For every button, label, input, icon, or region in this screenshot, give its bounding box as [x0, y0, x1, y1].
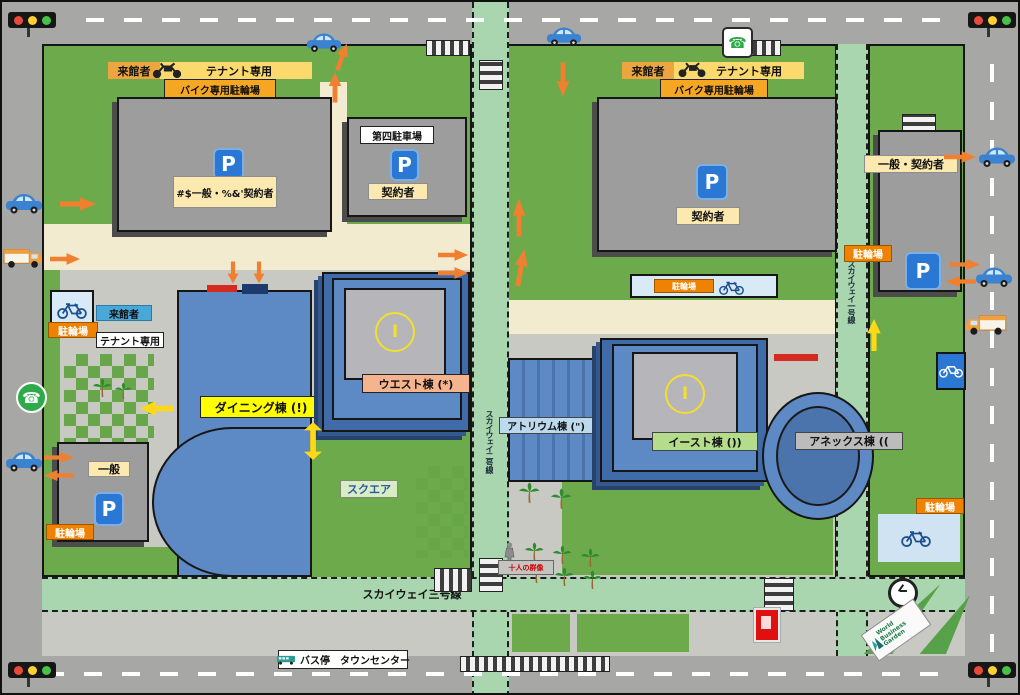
traffic-light-icon	[8, 12, 56, 28]
square-label: スクエア	[340, 480, 398, 498]
car-icon	[305, 30, 343, 54]
public-phone-icon: ☎	[722, 27, 753, 58]
truck-icon	[964, 310, 1008, 337]
east-tower-roof-glyph: I	[665, 374, 705, 414]
annex-building-label: アネックス棟 ((	[795, 432, 903, 450]
parking-sign: P	[390, 149, 419, 181]
car-icon	[545, 24, 583, 48]
palm-tree-icon	[518, 482, 540, 504]
car-icon	[4, 448, 44, 474]
west-gate-visitor-label: 来館者	[96, 305, 152, 321]
palm-tree-icon	[582, 570, 602, 590]
palm-tree-icon	[554, 567, 574, 587]
east-tower-label: イースト棟 ())	[652, 432, 758, 451]
palm-tree-icon	[114, 382, 132, 400]
traffic-light-icon	[968, 12, 1016, 28]
palm-tree-icon	[580, 548, 600, 568]
fourth-parking-label: 契約者	[368, 183, 428, 200]
car-icon	[977, 144, 1017, 169]
bicycle-icon	[900, 528, 932, 547]
skyway-line2-label: スカイウェイ二号線	[485, 410, 493, 520]
palm-tree-icon	[524, 542, 544, 562]
southeast-bike-label: 駐輪場	[916, 498, 964, 514]
west-gate-tenant-label: テナント専用	[96, 332, 164, 348]
motorcycle-icon	[150, 59, 184, 79]
west-gate-bike-label: 駐輪場	[48, 322, 98, 338]
west-tower-label: ウエスト棟 (*)	[362, 374, 470, 393]
crosswalk-top-west	[426, 40, 470, 56]
monument-label: 十人の群像	[498, 560, 554, 575]
top-road-centerline	[86, 18, 956, 22]
northeast-parking-label: 契約者	[676, 207, 740, 225]
planter-grid-square	[416, 466, 468, 558]
traffic-light-icon	[8, 662, 56, 678]
east-band-visitor: 来館者	[622, 62, 674, 79]
east-parking-label: 一般・契約者	[864, 155, 958, 173]
crosswalk-bottom-road	[460, 656, 610, 672]
stairs-skyway3-west	[434, 568, 472, 592]
east-bike-parking-label: バイク専用駐輪場	[660, 79, 768, 99]
southwest-bike-label: 駐輪場	[46, 524, 94, 540]
south-lawn-1	[512, 614, 570, 652]
west-band-tenant: テナント専用	[194, 62, 284, 79]
motorcycle-icon	[676, 59, 708, 78]
car-icon	[4, 190, 44, 216]
red-signboard-icon	[754, 608, 780, 642]
south-lawn-2	[577, 614, 689, 652]
skyway-line3-road	[42, 577, 965, 612]
parking-sign: P	[696, 164, 728, 200]
bus-icon	[276, 654, 296, 665]
east-roof-red-mark	[774, 354, 818, 361]
east-parking-bike-label: 駐輪場	[844, 245, 892, 262]
stairs-skyway3-east	[764, 578, 794, 611]
bicycle-icon	[938, 362, 964, 378]
bicycle-icon	[56, 300, 88, 319]
northwest-parking-label: #$一般・%&'契約者	[173, 176, 277, 208]
center-bike-label: 駐輪場	[654, 279, 714, 293]
bus-stop-text: バス停 タウンセンター	[300, 652, 410, 667]
crosswalk-skyway2-north	[479, 60, 503, 90]
fourth-parking-name: 第四駐車場	[360, 126, 434, 144]
skyway-line1-label: スカイウェイ一号線	[847, 260, 855, 370]
dining-building-label: ダイニング棟 (!)	[200, 396, 322, 418]
bus-stop-label: バス停 タウンセンター	[278, 650, 408, 669]
palm-tree-icon	[552, 545, 572, 565]
traffic-light-icon	[968, 662, 1016, 678]
east-band-tenant: テナント専用	[704, 62, 794, 79]
bicycle-icon	[718, 279, 745, 295]
car-icon	[974, 264, 1014, 289]
campus-map: スカイウェイ二号線 スカイウェイ一号線 スカイウェイ三号線 来館者 テナント専用…	[0, 0, 1020, 695]
palm-tree-icon	[92, 378, 112, 398]
east-driveway	[509, 300, 835, 334]
palm-tree-icon	[550, 488, 572, 510]
dining-roof-blue-mark	[242, 284, 268, 294]
bottom-road-centerline	[46, 672, 946, 676]
southwest-parking-label: 一般	[88, 461, 130, 477]
planter-grid-west	[64, 354, 154, 449]
dining-building-round-wing	[152, 427, 312, 577]
parking-sign: P	[905, 252, 941, 290]
west-tower-roof-glyph: I	[375, 312, 415, 352]
dining-roof-red-mark	[207, 285, 237, 292]
atrium-building-label: アトリウム棟 (")	[499, 417, 593, 434]
west-bike-parking-label: バイク専用駐輪場	[164, 79, 276, 99]
truck-icon	[2, 244, 44, 270]
public-phone-icon: ☎	[16, 382, 47, 413]
parking-sign: P	[94, 492, 124, 526]
annex-building-inner-arc	[776, 406, 860, 506]
